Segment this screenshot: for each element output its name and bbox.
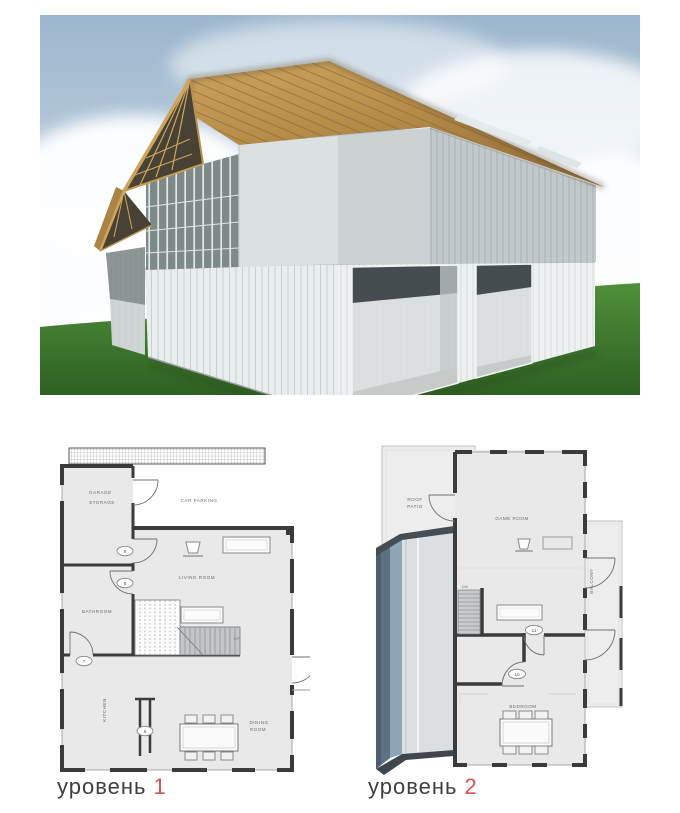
room-label-game-room: GAME ROOM: [495, 516, 529, 521]
door-tag-8: 8: [124, 581, 127, 586]
hatched-wall-band: [69, 448, 265, 464]
floor-plan-level-2: ROOF PATIO GAME ROOM DN BALCONY BEDROOM …: [372, 438, 628, 778]
room-label-garage-1: GARAGE: [89, 490, 112, 495]
sofa-top: [223, 537, 270, 553]
level-1-caption-number: 1: [154, 774, 167, 799]
level-2-caption-number: 2: [465, 774, 478, 799]
level-1-caption: уровень1: [57, 774, 167, 800]
door-tag-11: 11: [532, 628, 537, 633]
stairs-up-label: UP: [234, 637, 240, 641]
wall-pilaster: [286, 528, 294, 535]
room-label-roof-2: PATIO: [407, 504, 423, 509]
game-room-table: [497, 605, 542, 620]
plan2-stairs: [458, 590, 480, 634]
room-label-kitchen: KITCHEN: [102, 698, 107, 722]
level-1-caption-text: уровень: [57, 774, 147, 799]
door-tag-6: 6: [144, 729, 147, 734]
dining-table: [180, 715, 238, 760]
room-label-dining-2: ROOM: [250, 727, 266, 732]
level-2-caption: уровень2: [368, 774, 478, 800]
room-label-garage-2: STORAGE: [89, 500, 115, 505]
container-bay-1: [352, 265, 458, 395]
garage-parking-door: [133, 480, 158, 505]
room-label-car-parking: CAR PARKING: [181, 498, 218, 503]
room-label-balcony: BALCONY: [589, 568, 594, 593]
upper-box-front: [239, 136, 338, 267]
room-label-living-room: LIVING ROOM: [179, 575, 215, 580]
door-tag-10: 10: [514, 672, 520, 677]
upper-box-side: [338, 128, 430, 264]
room-label-dining-1: DINING: [249, 720, 268, 725]
stairs-dn-label: DN: [462, 585, 468, 589]
house-3d-render: [40, 15, 640, 395]
sofa-mid: [181, 607, 223, 623]
door-tag-7: 7: [83, 659, 86, 664]
level-2-caption-text: уровень: [368, 774, 458, 799]
door-tag-9: 9: [124, 549, 127, 554]
container-bay-2: [476, 264, 532, 378]
entry-door: [292, 657, 310, 683]
floor-plan-level-1: GARAGE STORAGE CAR PARKING LIVING ROOM B…: [55, 443, 310, 778]
room-label-bedroom: BEDROOM: [509, 704, 536, 709]
room-label-roof-1: ROOF: [407, 497, 422, 502]
balcony-area: [585, 521, 622, 707]
bed: [500, 711, 552, 754]
room-label-bathroom: BATHROOM: [82, 609, 112, 614]
sloped-roof-3d-shape: [376, 526, 454, 775]
